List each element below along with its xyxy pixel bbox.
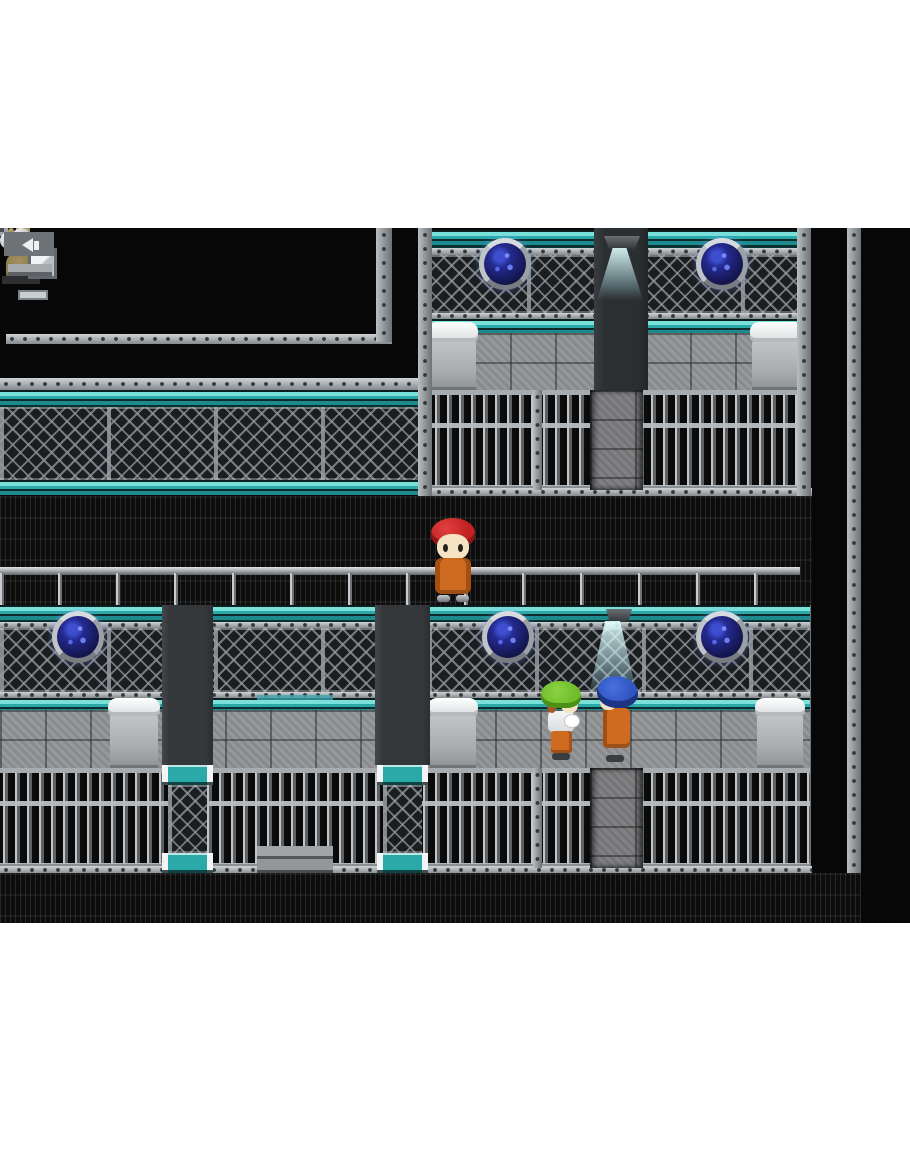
shoe <box>552 753 570 760</box>
bed-base <box>430 342 476 390</box>
speaker-icon <box>34 241 39 250</box>
screenshot-root <box>0 0 910 1155</box>
column-cap <box>162 765 213 785</box>
bed-base <box>110 716 158 768</box>
lattice-column <box>168 785 207 853</box>
left-wall-top-rail <box>0 378 432 390</box>
far-right-wall-strip <box>847 228 861 876</box>
walkway-railing <box>0 567 800 605</box>
porthole-light <box>482 611 534 663</box>
sink-intercom-unit[interactable] <box>0 228 4 232</box>
void-frame-horizontal-inner <box>6 334 392 344</box>
shoe <box>606 755 624 762</box>
game-viewport <box>0 228 910 923</box>
sink-drawer <box>8 264 52 276</box>
bed <box>750 322 802 390</box>
character-prisoner-red[interactable] <box>428 518 478 602</box>
upper-room-gate-post <box>533 390 542 490</box>
letterbox-top <box>0 0 910 228</box>
blue-hair <box>597 676 638 708</box>
lattice-column <box>383 785 422 853</box>
bed <box>428 322 478 390</box>
green-cap <box>541 681 581 708</box>
bed <box>755 698 805 768</box>
face <box>437 534 469 560</box>
shoe <box>456 595 469 602</box>
left-wall-teal-stripe-bottom <box>0 480 430 495</box>
ceiling-lamp <box>604 236 640 249</box>
character-prisoner-green-cap[interactable] <box>541 681 583 760</box>
orange-jumpsuit <box>603 708 630 748</box>
bed-pillow <box>750 322 802 342</box>
bed-pillow <box>428 322 478 342</box>
support-pillar <box>375 605 430 765</box>
letterbox-bottom <box>0 923 910 1155</box>
speaker-icon <box>22 238 33 252</box>
column-cap <box>162 853 213 873</box>
void-frame-vertical <box>376 228 392 342</box>
orange-jumpsuit <box>435 558 471 594</box>
bed-base <box>757 716 803 768</box>
staircase-landing <box>257 846 333 873</box>
lower-room-stone-column <box>590 768 643 868</box>
ceiling-lamp <box>606 609 632 622</box>
bed <box>428 698 478 768</box>
upper-room-left-edge <box>418 228 432 496</box>
alcove-column-lower <box>590 390 643 490</box>
eye <box>443 544 448 552</box>
railing-posts <box>0 573 800 605</box>
left-wall-teal-stripe-top <box>0 390 430 407</box>
door-keypad <box>18 290 48 300</box>
staircase-teal-line <box>257 695 333 700</box>
support-pillar <box>162 605 213 765</box>
porthole-light <box>696 238 748 290</box>
porthole-light <box>479 238 531 290</box>
column-cap <box>377 853 428 873</box>
white-bundle <box>564 714 580 728</box>
eye <box>458 544 463 552</box>
bed-base <box>430 716 476 768</box>
lower-room-gate-post <box>533 768 542 868</box>
orange-pants <box>551 731 572 753</box>
bed-pillow <box>428 698 478 716</box>
left-wall-lattice <box>0 407 430 480</box>
column-cap <box>377 765 428 785</box>
shoe <box>437 595 450 602</box>
bed-pillow <box>755 698 805 716</box>
porthole-light <box>52 611 104 663</box>
bed-base <box>752 342 800 390</box>
character-prisoner-blue[interactable] <box>596 676 638 762</box>
lower-floor <box>0 873 861 923</box>
porthole-light <box>696 611 748 663</box>
bed <box>108 698 160 768</box>
bed-pillow <box>108 698 160 716</box>
